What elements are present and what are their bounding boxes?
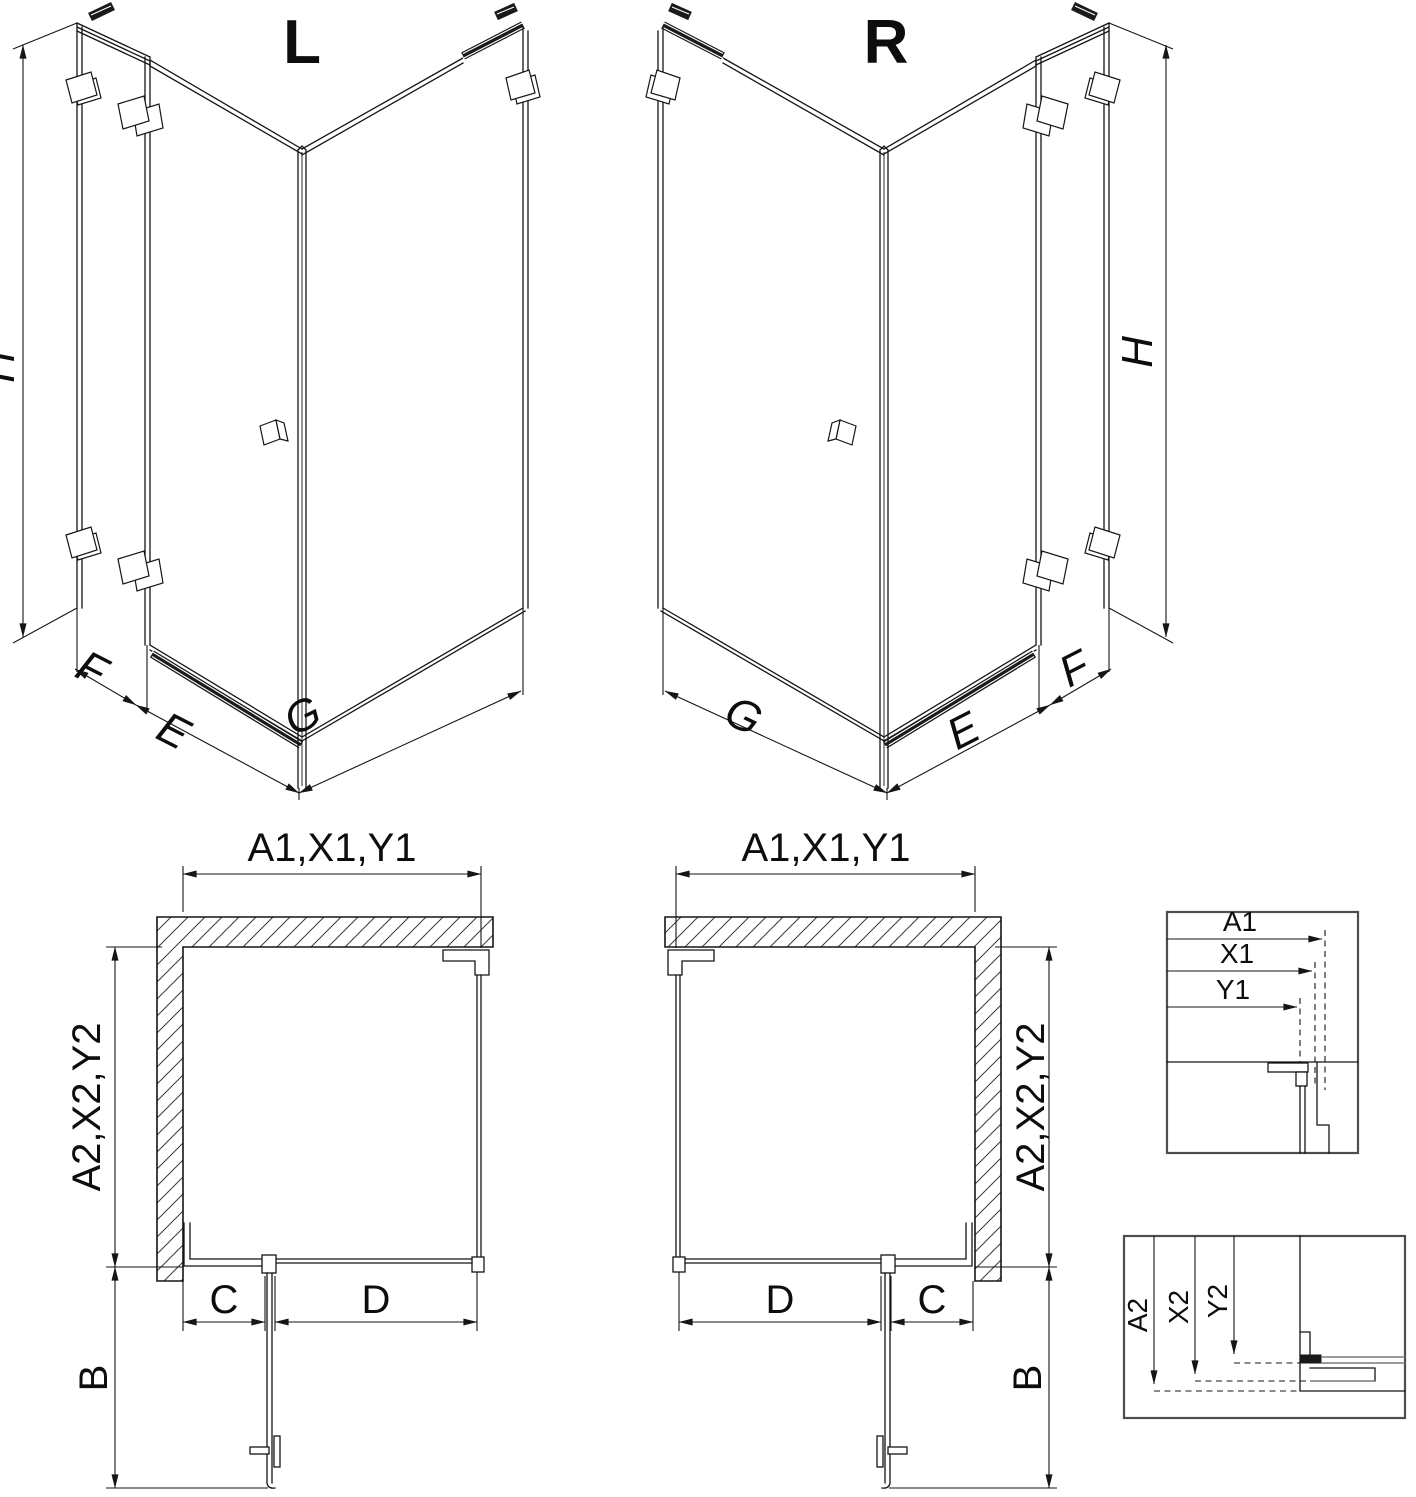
- dim-label-g: G: [717, 686, 769, 745]
- dim-label-a2x2y2: A2,X2,Y2: [1009, 1022, 1053, 1191]
- door-handle-icon: [828, 420, 856, 445]
- dim-label-h: H: [0, 351, 24, 383]
- iso-l-door-panel: [118, 57, 302, 748]
- plan-r-dim-d: D: [679, 1272, 881, 1331]
- dim-label-e: E: [149, 703, 198, 760]
- plan-l-dim-d: D: [275, 1272, 477, 1331]
- iso-r-door-panel: [828, 57, 1068, 748]
- variant-label-left: L: [283, 8, 321, 77]
- dim-label-c: C: [210, 1278, 239, 1322]
- detail-label-y2: Y2: [1202, 1284, 1233, 1318]
- dim-label-d: D: [766, 1278, 795, 1322]
- dim-label-b: B: [1006, 1365, 1050, 1392]
- technical-drawing-page: L: [0, 0, 1416, 1497]
- dim-label-h: H: [1113, 336, 1162, 368]
- detail-label-y1: Y1: [1216, 974, 1250, 1005]
- side-panel-glass: [676, 975, 680, 1257]
- iso-l-dim-bottom: F E G: [68, 608, 523, 800]
- detail-wall-profile-section: [1268, 1062, 1329, 1153]
- shower-enclosure-dimension-drawing: L: [0, 0, 1416, 1497]
- wall-hatched: [665, 917, 1001, 1281]
- corner-bracket: [668, 950, 714, 975]
- dim-label-a1x1y1: A1,X1,Y1: [741, 826, 910, 870]
- corner-profile: [673, 1257, 685, 1272]
- door-pivot: [262, 1255, 276, 1273]
- detail-label-x1: X1: [1220, 938, 1254, 969]
- plan-l-dim-c: C: [183, 1276, 265, 1331]
- door-pivot: [881, 1255, 895, 1273]
- variant-label-right: R: [864, 8, 909, 77]
- hinge-icon: [118, 96, 163, 591]
- iso-l-dim-height: H: [0, 23, 77, 643]
- iso-r-side-panel: [646, 7, 884, 741]
- detail-floor-profile-section: [1300, 1236, 1405, 1391]
- corner-profile: [472, 1257, 484, 1272]
- dim-label-b: B: [72, 1365, 116, 1392]
- detail-label-a1: A1: [1223, 906, 1257, 937]
- dim-label-c: C: [918, 1278, 947, 1322]
- dim-label-d: D: [362, 1278, 391, 1322]
- plan-view-right: A1,X1,Y1 A2,X2,Y2 B D C: [665, 826, 1057, 1488]
- dim-label-a2x2y2: A2,X2,Y2: [65, 1022, 109, 1191]
- iso-l-wall-brackets: [66, 72, 101, 560]
- plan-view-left: A1,X1,Y1 A2,X2,Y2 B C D: [65, 826, 493, 1488]
- threshold-line: [685, 1259, 881, 1263]
- door-handle-icon: [250, 1447, 269, 1454]
- door-handle-icon: [260, 420, 288, 445]
- iso-view-left: L: [0, 6, 540, 800]
- detail-label-x2: X2: [1163, 1290, 1194, 1324]
- side-panel-glass: [477, 975, 481, 1257]
- wall-profile: [184, 1223, 262, 1266]
- ceiling-arm-icon: [1073, 6, 1096, 17]
- wall-profile: [894, 1223, 972, 1266]
- iso-r-wall-brackets: [1085, 72, 1120, 560]
- detail-label-a2: A2: [1122, 1298, 1153, 1332]
- dim-label-f: F: [1051, 640, 1099, 697]
- iso-r-dim-bottom: F E G: [663, 608, 1111, 800]
- wall-hatched: [157, 917, 493, 1281]
- threshold-line: [276, 1259, 472, 1263]
- door-handle-icon: [888, 1447, 907, 1454]
- iso-l-side-panel: [302, 7, 540, 741]
- detail-depth-measures: A2 X2 Y2: [1122, 1236, 1405, 1418]
- ceiling-arm-icon: [670, 7, 690, 16]
- hinge-icon: [1023, 96, 1068, 591]
- dim-label-a1x1y1: A1,X1,Y1: [247, 826, 416, 870]
- ceiling-arm-icon: [496, 7, 516, 16]
- detail-front-measures: A1 X1 Y1: [1167, 906, 1358, 1153]
- plan-r-dim-c: C: [891, 1276, 973, 1331]
- ceiling-arm-icon: [90, 6, 113, 17]
- plan-l-dim-swing: B: [72, 1267, 268, 1488]
- corner-bracket: [443, 950, 489, 975]
- iso-r-dim-height: H: [1109, 23, 1173, 643]
- iso-view-right: R: [646, 6, 1173, 800]
